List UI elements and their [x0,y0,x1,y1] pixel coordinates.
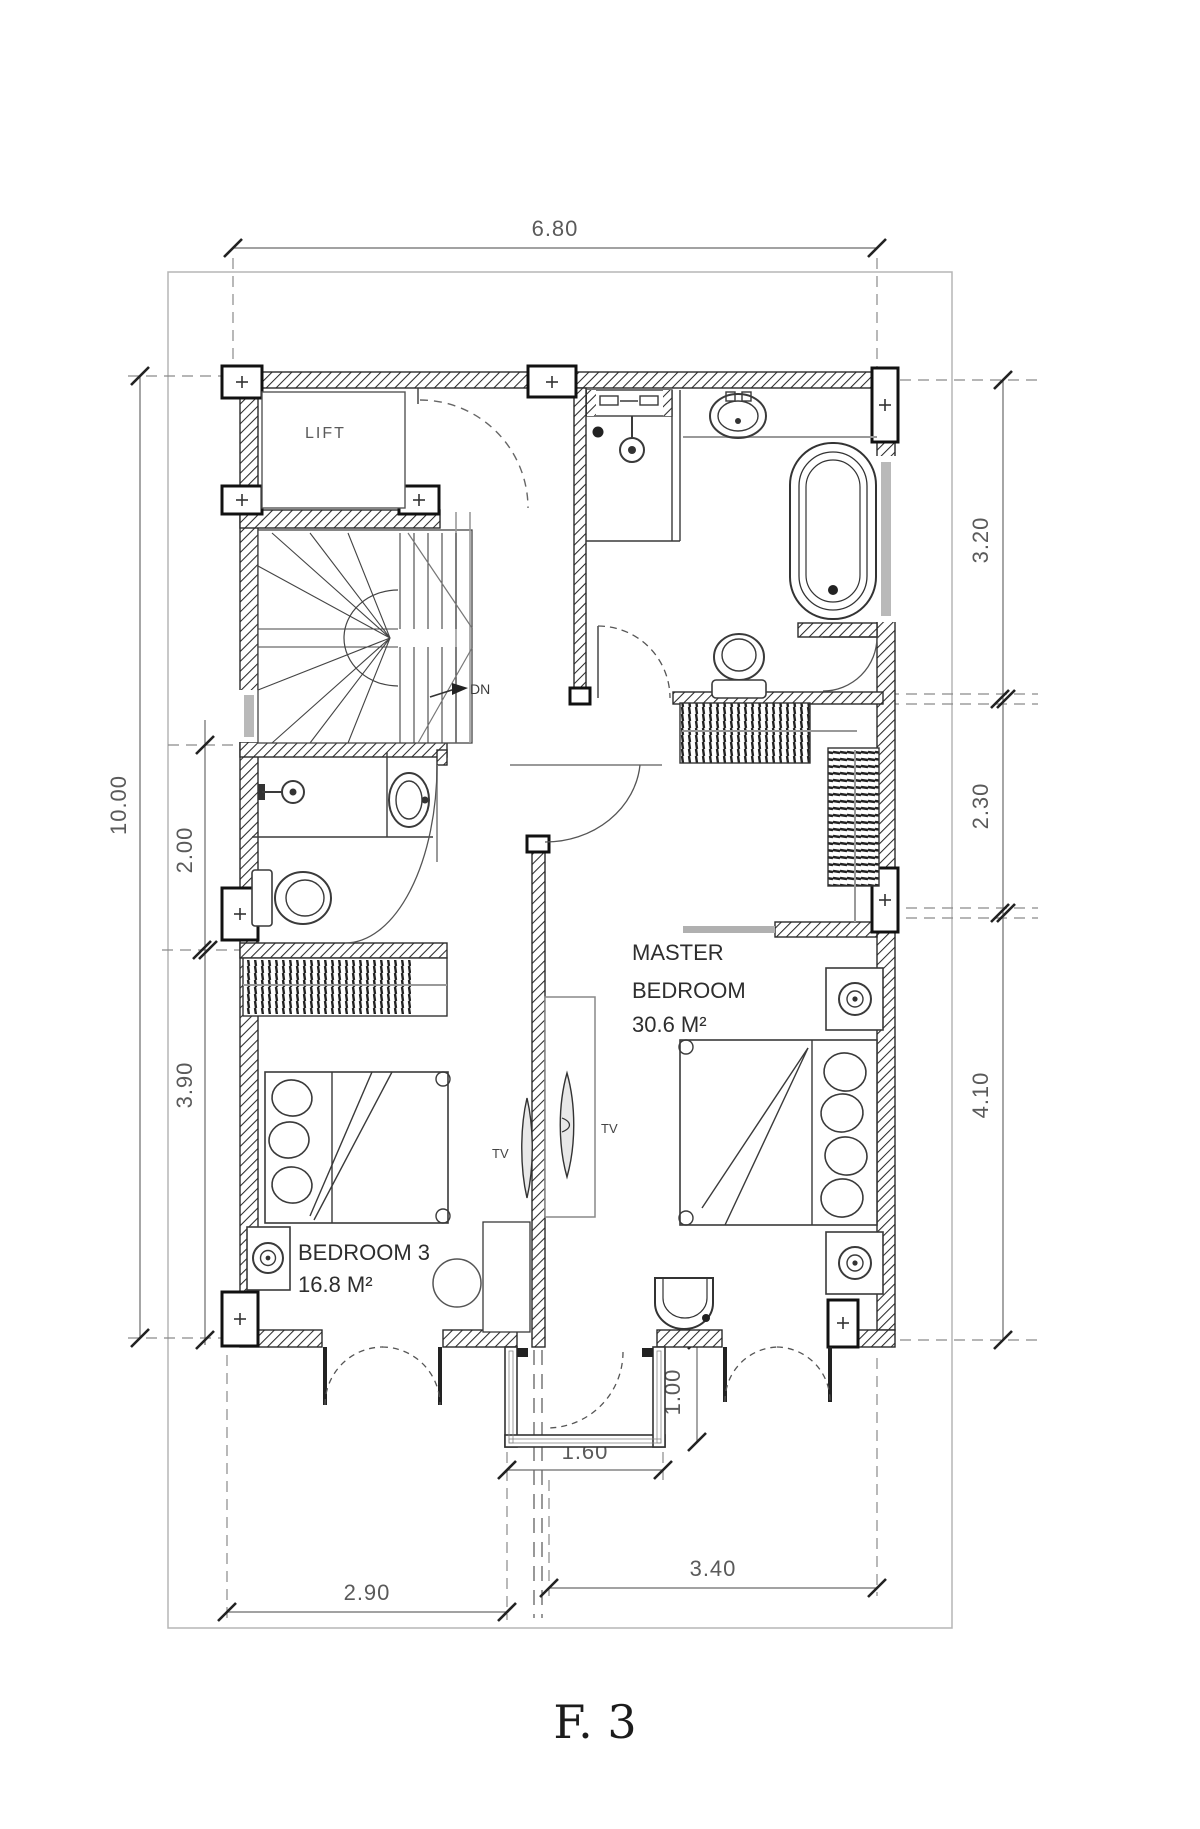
door-jamb [517,1348,528,1357]
sheet-title: F. 3 [553,1695,636,1749]
wall-tub-deck [798,623,877,637]
lift: LIFT [262,388,528,508]
dim-left-bath-label: 2.00 [172,827,197,874]
master-bedroom-label-2: BEDROOM [632,978,746,1003]
master-bedroom: MASTER BEDROOM 30.6 M² [632,940,883,1329]
pillows [267,1077,315,1205]
tv-wall: TV TV [492,997,618,1217]
exterior-doors [325,1347,830,1447]
stool-icon [433,1259,481,1307]
balcony-door-swing [547,1352,623,1428]
tv-bedroom3-label: TV [492,1146,509,1161]
dimension-right-stack: 3.20 2.30 4.10 [888,371,1038,1349]
bedroom3-label: BEDROOM 3 [298,1240,430,1265]
wall-masterbath-bottom [673,692,883,704]
floor-plan-drawing: 6.80 10.00 2.00 3.90 3.20 2.30 4.10 [0,0,1200,1829]
dim-right-closet-label: 2.30 [968,783,993,830]
floor-plan-sheet: 6.80 10.00 2.00 3.90 3.20 2.30 4.10 [0,0,1200,1829]
dim-left-total-label: 10.00 [106,775,131,835]
chair-icon [655,1278,713,1329]
dim-bottom-master-label: 3.40 [690,1556,737,1581]
bedroom3-area: 16.8 M² [298,1272,373,1297]
dimension-bottom: 1.60 1.00 2.90 3.40 [218,1331,886,1621]
dim-right-master-label: 4.10 [968,1072,993,1119]
wall-left [240,388,258,1330]
shower-head-icon [593,416,645,462]
bathroom-2 [252,752,437,943]
tub-area-door-swing [823,637,877,691]
bed-bedroom3 [265,1072,450,1223]
masterbath-door-swing [598,626,670,698]
door-jamb [642,1348,653,1357]
bedroom-3: BEDROOM 3 16.8 M² [247,1072,530,1332]
dimension-top-width: 6.80 [224,216,886,370]
master-entry-door-swing [545,765,640,842]
wardrobe-bedroom3 [243,958,447,1016]
dim-right-bathroom-label: 3.20 [968,517,993,564]
master-bedroom-area: 30.6 M² [632,1012,707,1037]
nightstand-lamp [247,1227,290,1290]
dim-bottom-bedroom3-label: 2.90 [344,1580,391,1605]
window-left-glass [244,695,254,737]
bathtub-icon [790,443,876,619]
master-bedroom-label-1: MASTER [632,940,724,965]
toilet-icon [712,634,766,698]
wall-closet-bottom [775,922,877,937]
sink-icon [710,392,766,438]
nightstand-lamp [826,1232,883,1294]
toilet-icon [252,870,331,926]
dim-left-bedroom3-label: 3.90 [172,1062,197,1109]
nightstand-lamp [826,968,883,1030]
french-door-bedroom3 [325,1347,440,1405]
sink-icon [389,773,429,827]
dim-top-width-label: 6.80 [532,216,579,241]
french-door-master [725,1347,830,1402]
shower-panel-icon [587,390,672,416]
wall-tv-B [532,844,545,1347]
dimension-left-inner: 2.00 3.90 [162,720,240,1349]
balcony [505,1347,665,1447]
stairs-direction-label: DN [470,681,490,697]
dimension-left-total: 10.00 [106,367,236,1347]
wall-bath2-door-stub [437,750,447,765]
wall-hall-A [574,388,586,698]
window-right-glass [881,462,891,616]
bath2-door-swing [345,765,437,943]
tv-bedroom3-icon [522,1098,533,1198]
wall-bath2-bottom [240,943,447,958]
dresser [483,1222,530,1332]
shower-head-icon [258,781,304,803]
tv-master-label: TV [601,1121,618,1136]
staircase: DN [258,512,490,743]
lift-label: LIFT [305,425,346,442]
wall-bath2-top [240,742,447,757]
master-bathroom [545,390,877,842]
opening-master-bedroom [683,926,775,933]
bed-master [679,1040,877,1225]
